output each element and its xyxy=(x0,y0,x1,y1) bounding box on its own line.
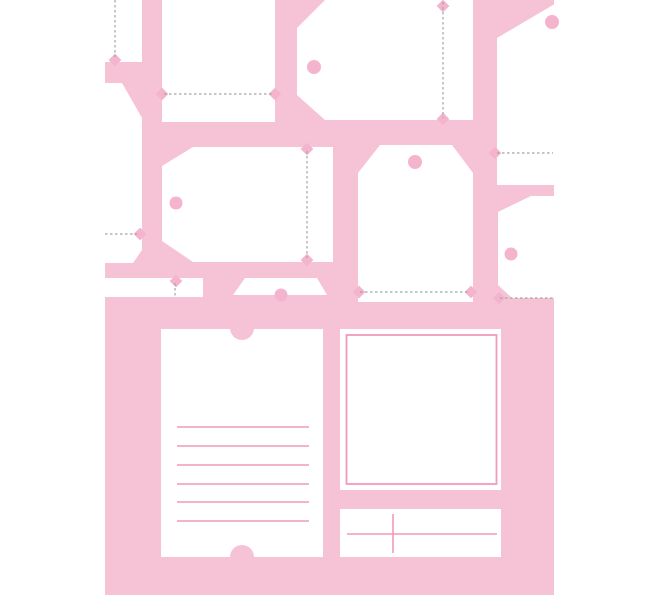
tag-template-sheet xyxy=(0,0,660,600)
tag-middle-left xyxy=(162,147,333,262)
tag-flap-top-left xyxy=(0,0,142,62)
tag-left-edge xyxy=(0,83,142,263)
cross-card xyxy=(340,509,501,557)
punch-hole xyxy=(170,197,183,210)
ticket-notch-bottom xyxy=(230,545,254,569)
punch-hole xyxy=(408,155,422,169)
tag-middle-right xyxy=(498,196,554,298)
tag-rect-top xyxy=(162,0,275,122)
punch-hole xyxy=(275,289,288,302)
punch-hole xyxy=(307,60,321,74)
punch-hole xyxy=(505,248,518,261)
tag-large-top xyxy=(297,0,473,120)
template-sheet-svg xyxy=(0,0,660,600)
photo-frame xyxy=(340,329,501,490)
punch-hole xyxy=(545,15,559,29)
tag-strip-bottom-left xyxy=(104,278,203,297)
ticket-notch-top xyxy=(230,316,254,340)
ticket-card xyxy=(161,329,323,557)
